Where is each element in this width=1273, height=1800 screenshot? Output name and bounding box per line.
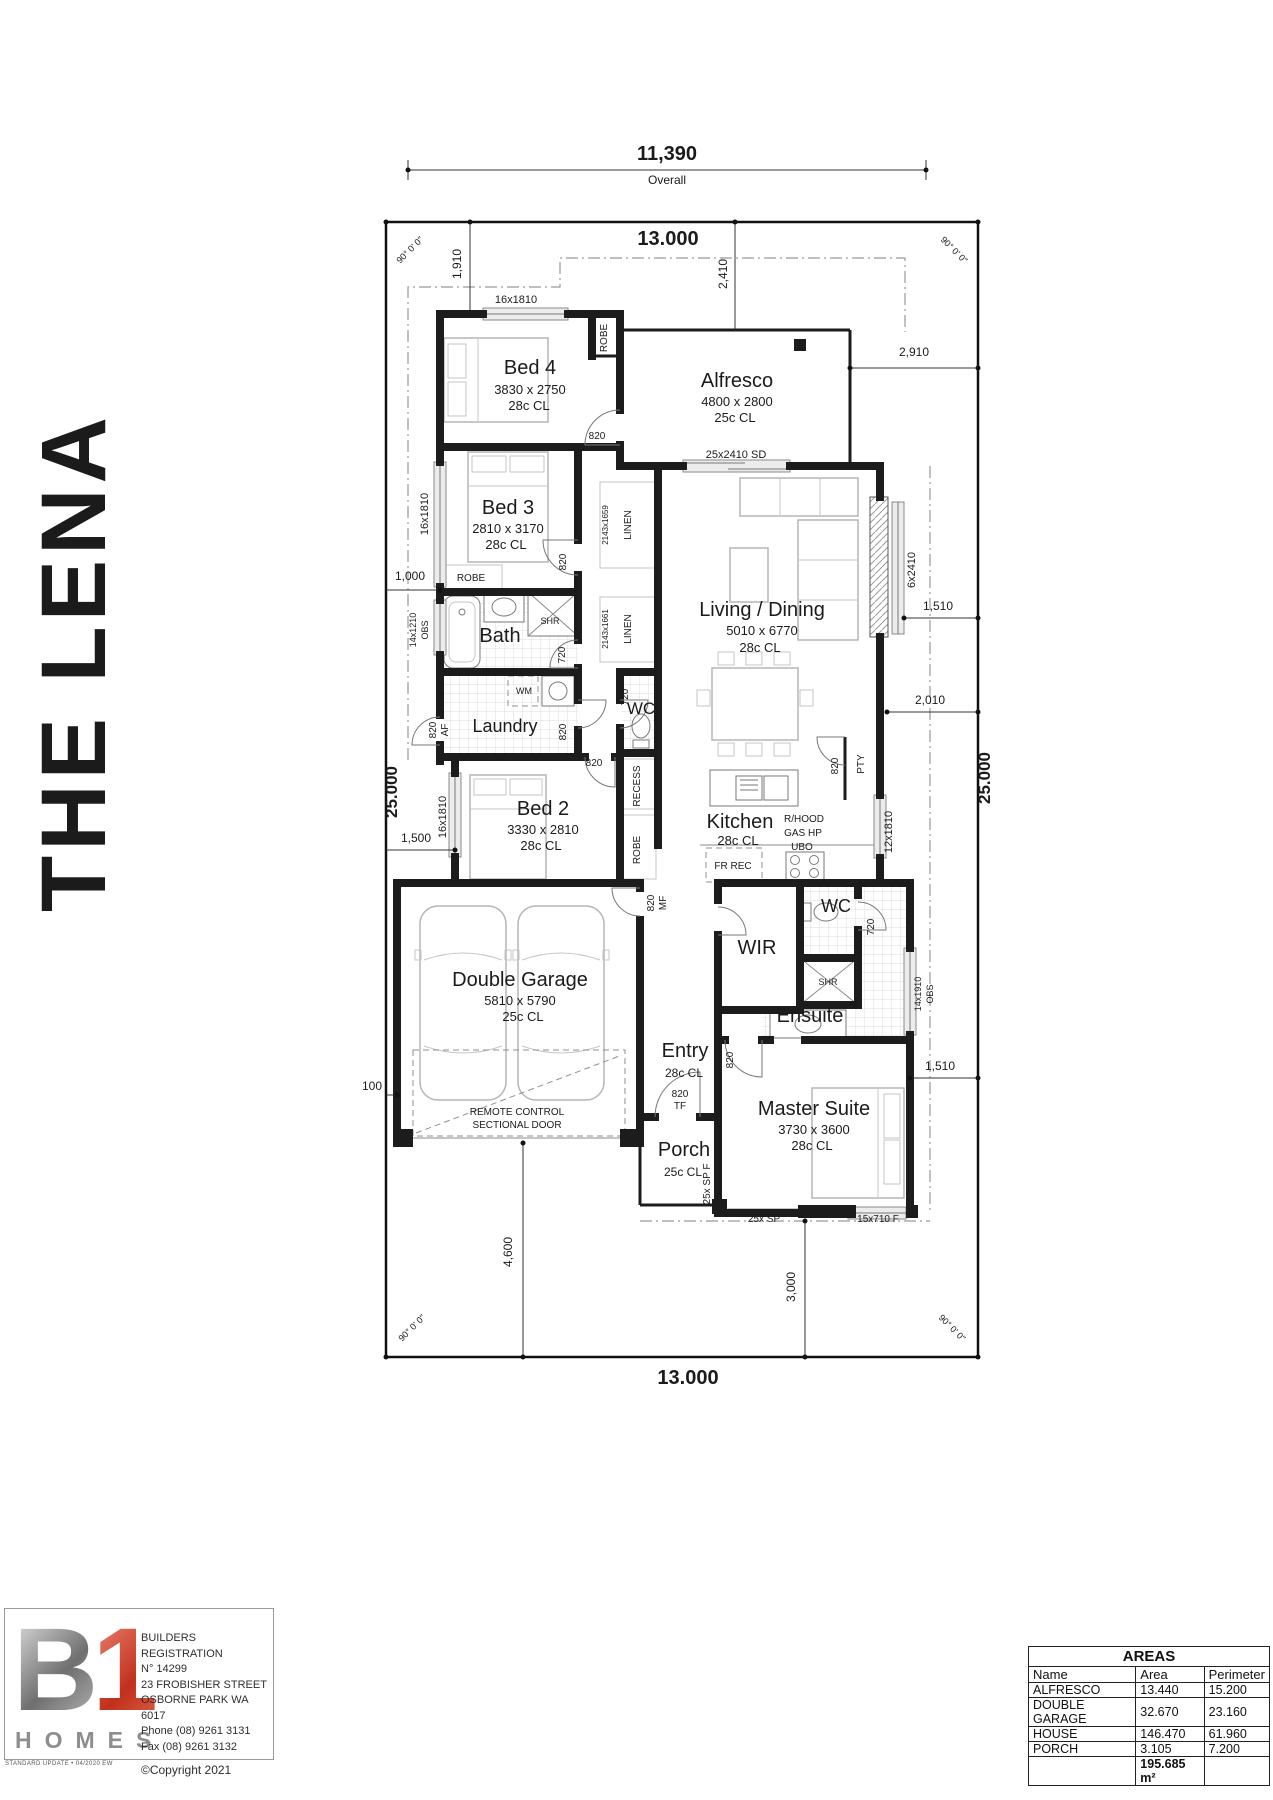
sheet-footnote: STANDARD UPDATE • 04/2020 EW [5,1761,113,1767]
reg-line: Fax (08) 9261 3132 [141,1740,273,1756]
window-bath [434,600,446,655]
plan-label-win-ensuite-obs: OBS [925,984,935,1003]
reg-line: N° 14299 [141,1662,273,1678]
areas-cell: HOUSE [1029,1727,1136,1742]
plan-label-robe-bed4: ROBE [599,324,610,353]
reg-line: 23 FROBISHER STREET [141,1678,273,1694]
front-pier-2 [906,1205,918,1218]
plan-label-pty: PTY [856,754,867,774]
cooktop [786,852,824,882]
plan-label-master-size: 3730 x 3600 [778,1122,850,1137]
plan-label-garage-ceiling: 25c CL [502,1009,543,1024]
window-bed3 [434,462,446,587]
plan-label-door-bed3: 820 [558,553,569,570]
plan-label-dim-1910: 1,910 [450,249,464,279]
plan-label-gas-hp: GAS HP [784,828,822,839]
plan-label-bath-name: Bath [479,625,520,647]
plan-label-living-name: Living / Dining [699,599,825,621]
plan-label-robe-bed3: ROBE [457,573,486,584]
garage-pier-left [393,1129,413,1147]
plan-label-living-size: 5010 x 6770 [726,623,798,638]
plan-label-bed3-size: 2810 x 3170 [472,521,544,536]
table-row: DOUBLE GARAGE 32.670 23.160 [1029,1698,1270,1727]
plan-label-dim-overall-caption: Overall [648,173,686,187]
plan-label-alfresco-size: 4800 x 2800 [701,394,773,409]
builder-registration: BUILDERS REGISTRATION N° 14299 23 FROBIS… [141,1631,273,1779]
areas-header-name: Name [1029,1667,1136,1683]
plan-label-porch-name: Porch [658,1139,710,1161]
floor-plan-sheet: THE LENA [0,0,1273,1800]
areas-cell: PORCH [1029,1742,1136,1757]
plan-label-garage-door-line2: SECTIONAL DOOR [472,1120,561,1131]
plan-label-recess: RECESS [632,765,643,806]
plan-label-dim-1000: 1,000 [395,569,425,583]
garage-pier-right [620,1129,640,1147]
plan-label-win-bed3: 16x1810 [419,493,431,535]
plan-label-win-bed4: 16x1810 [495,294,537,306]
plan-label-dim-2010: 2,010 [915,693,945,707]
areas-cell: 146.470 [1136,1727,1204,1742]
plan-label-laundry-name: Laundry [472,716,537,736]
plan-label-rhood: R/HOOD [784,814,824,825]
plan-label-door-wc2: 720 [866,918,877,935]
reg-line: Phone (08) 9261 3131 [141,1724,273,1740]
floor-plan-drawing: THE LENA [0,0,1273,1800]
plan-label-wc-name: WC [627,699,655,718]
plan-label-win-bath-size: 14x1210 [408,613,418,648]
laundry-trough [542,676,574,706]
plan-label-entry-ceiling: 28c CL [665,1066,703,1080]
plan-label-bed2-size: 3330 x 2810 [507,822,579,837]
plan-label-dim-100: 100 [362,1079,382,1093]
plan-label-dim-2410: 2,410 [716,259,730,289]
plan-label-robe-hall: ROBE [632,836,643,865]
plan-label-dim-overall: 11,390 [637,143,697,165]
plan-label-door-hall: 820 [586,758,603,769]
areas-table: AREAS Name Area Perimeter ALFRESCO 13.44… [1028,1646,1270,1786]
plan-label-dim-25000-left: 25.000 [382,766,401,818]
plan-label-bed4-name: Bed 4 [504,357,556,379]
areas-cell: 23.160 [1204,1698,1269,1727]
areas-cell: DOUBLE GARAGE [1029,1698,1136,1727]
plan-label-linen1-size: 2143x1659 [601,505,610,545]
plan-label-dim-bottom-13000: 13.000 [657,1367,718,1389]
plan-label-door-laundry-ext1: 820 [428,721,439,738]
plan-label-garage-size: 5810 x 5790 [484,993,556,1008]
plan-label-door-laundry-ext2: AF [440,724,451,737]
plan-label-shr-ensuite: SHR [818,977,838,987]
plan-label-dim-4600: 4,600 [501,1237,515,1267]
plan-label-door-bath: 720 [557,646,568,663]
areas-cell: 15.200 [1204,1683,1269,1698]
plan-label-door-bed4: 820 [589,431,606,442]
plan-label-door-laundry: 820 [558,723,569,740]
plan-label-win-kitchen: 12x1810 [883,811,895,853]
plan-label-kitchen-name: Kitchen [707,811,774,833]
plan-label-angle-top-left: 90° 0' 0" [394,234,425,265]
plan-label-dim-top-13000: 13.000 [637,228,698,250]
plan-label-bed2-ceiling: 28c CL [520,838,561,853]
plan-label-win-alfresco-sd: 25x2410 SD [706,449,767,461]
reg-line: OSBORNE PARK WA 6017 [141,1693,273,1724]
table-row: ALFRESCO 13.440 15.200 [1029,1683,1270,1698]
kitchen-island [710,770,798,806]
plan-label-ensuite-name: Ensuite [777,1005,844,1027]
areas-title: AREAS [1029,1647,1270,1667]
areas-cell: 32.670 [1136,1698,1204,1727]
areas-header-area: Area [1136,1667,1204,1683]
areas-cell: ALFRESCO [1029,1683,1136,1698]
plan-label-dim-1510-lower: 1,510 [925,1059,955,1073]
reg-line: BUILDERS REGISTRATION [141,1631,273,1662]
window-bed2 [449,773,461,857]
table-row: PORCH 3.105 7.200 [1029,1742,1270,1757]
plan-title: THE LENA [23,412,125,912]
plan-label-wc2-name: WC [821,896,851,916]
plan-label-win-living: 6x2410 [906,552,918,588]
plan-label-angle-bottom-left: 90° 0' 0" [396,1312,427,1343]
plan-label-bed3-name: Bed 3 [482,497,534,519]
plan-label-door-wc: 720 [620,688,631,705]
plan-label-shr-bath: SHR [540,616,560,626]
bath-tub [444,596,480,668]
bath-vanity [484,592,524,622]
plan-label-bed4-size: 3830 x 2750 [494,382,566,397]
plan-label-dim-3000: 3,000 [784,1272,798,1302]
areas-total: 195.685 m² [1136,1757,1204,1786]
plan-label-alfresco-name: Alfresco [701,370,773,392]
plan-label-screen-front: 25x SP [748,1214,781,1225]
plan-label-screen-porch-side: 25x SP F [702,1164,713,1205]
sliding-door-alfresco [683,460,790,472]
plan-label-master-ceiling: 28c CL [791,1138,832,1153]
plan-label-dim-1510-upper: 1,510 [923,599,953,613]
plan-label-master-name: Master Suite [758,1098,870,1120]
plan-label-door-garage1: 820 [646,894,657,911]
areas-cell [1204,1757,1269,1786]
plan-label-win-bed2: 16x1810 [437,796,449,838]
plan-label-win-bath-obs: OBS [420,620,430,639]
plan-label-wir-name: WIR [738,937,777,959]
plan-label-door-master: 820 [725,1051,736,1068]
alfresco-post [794,339,806,351]
table-row: HOUSE 146.470 61.960 [1029,1727,1270,1742]
plan-label-fr-rec: FR REC [714,861,751,872]
plan-label-kitchen-ceiling: 28c CL [717,833,758,848]
plan-label-dim-2910: 2,910 [899,345,929,359]
plan-label-linen1: LINEN [623,510,634,539]
plan-label-living-ceiling: 28c CL [739,640,780,655]
plan-label-wm: WM [516,686,532,696]
plan-label-bed2-name: Bed 2 [517,798,569,820]
areas-cell [1029,1757,1136,1786]
plan-label-garage-name: Double Garage [452,969,588,991]
window-living [892,502,904,634]
copyright: ©Copyright 2021 [141,1763,273,1779]
dining-table [697,652,813,756]
plan-label-bed3-ceiling: 28c CL [485,537,526,552]
plan-label-door-entry2: TF [674,1101,686,1112]
hatched-pier [870,497,888,637]
builder-logo-box: B1 HOMES BUILDERS REGISTRATION N° 14299 … [4,1608,274,1760]
plan-label-win-master: 15x710 F [857,1214,899,1225]
areas-cell: 7.200 [1204,1742,1269,1757]
plan-label-angle-top-right: 90° 0' 0" [939,234,970,265]
plan-label-win-ensuite-size: 14x1910 [913,977,923,1012]
bath-shower [528,592,578,636]
front-pier-1 [798,1205,856,1218]
plan-label-garage-door-line1: REMOTE CONTROL [470,1107,565,1118]
plan-label-linen2-size: 2143x1661 [601,609,610,649]
plan-label-bed4-ceiling: 28c CL [508,398,549,413]
plan-label-dim-25000-right: 25.000 [975,752,994,804]
window-bed4 [483,308,568,320]
plan-label-ubo: UBO [791,842,813,853]
coffee-table [730,548,768,602]
plan-label-linen2: LINEN [623,614,634,643]
plan-label-angle-bottom-right: 90° 0' 0" [937,1312,968,1343]
plan-label-alfresco-ceiling: 25c CL [714,410,755,425]
plan-label-door-entry1: 820 [672,1089,689,1100]
areas-cell: 13.440 [1136,1683,1204,1698]
porch-pier [712,1199,727,1214]
plan-label-dim-1500: 1,500 [401,831,431,845]
plan-label-entry-name: Entry [662,1040,709,1062]
areas-cell: 61.960 [1204,1727,1269,1742]
logo-letter-b: B [13,1604,98,1736]
plan-label-porch-ceiling: 25c CL [664,1165,702,1179]
plan-label-door-pantry: 820 [830,757,841,774]
table-total-row: 195.685 m² [1029,1757,1270,1786]
plan-label-door-garage2: MF [658,896,669,910]
areas-cell: 3.105 [1136,1742,1204,1757]
b1-logo: B1 [13,1611,158,1729]
areas-header-perimeter: Perimeter [1204,1667,1269,1683]
